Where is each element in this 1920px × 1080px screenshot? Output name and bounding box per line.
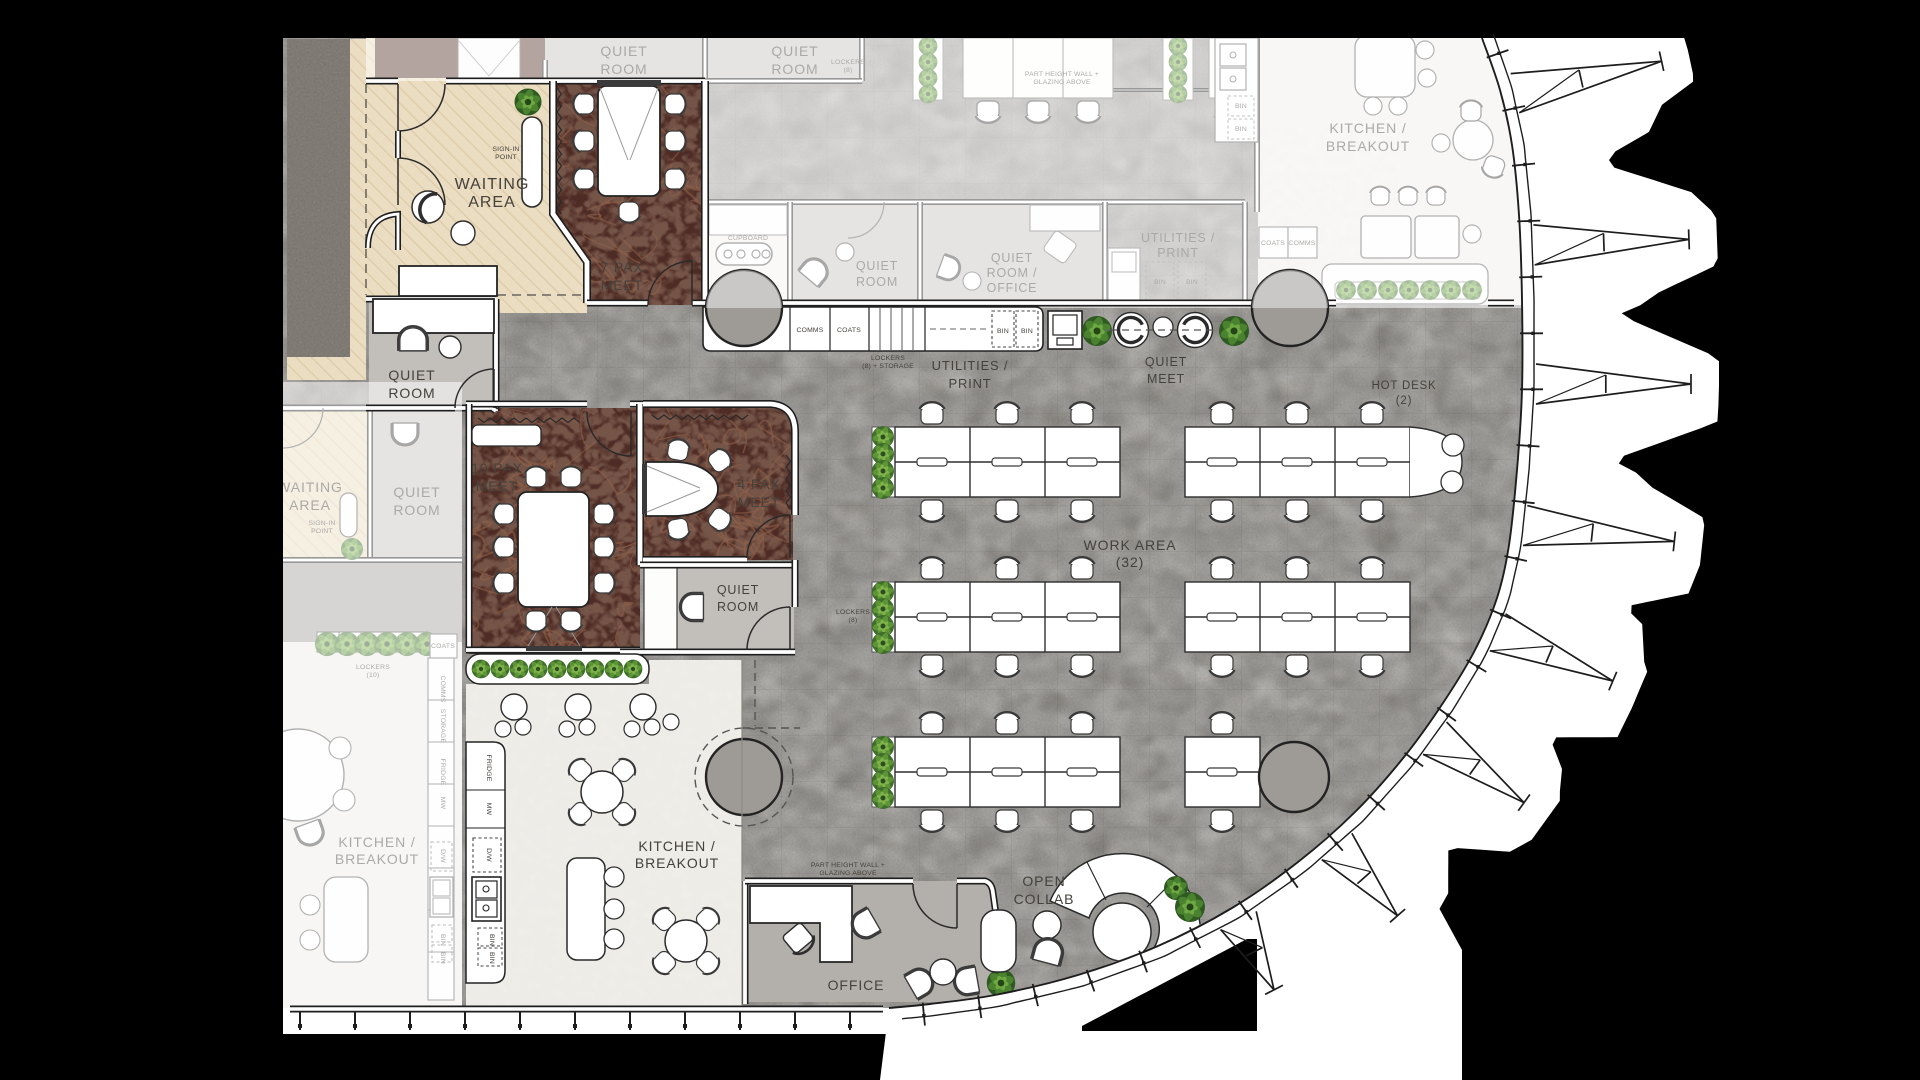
svg-text:10 PAX: 10 PAX bbox=[471, 460, 523, 476]
svg-text:QUIET: QUIET bbox=[717, 583, 759, 597]
svg-text:FRIDGE: FRIDGE bbox=[485, 755, 492, 782]
svg-text:BREAKOUT: BREAKOUT bbox=[635, 855, 719, 871]
svg-text:OPEN: OPEN bbox=[1022, 873, 1065, 889]
svg-text:UTILITIES /: UTILITIES / bbox=[932, 358, 1009, 373]
svg-text:7 PAX: 7 PAX bbox=[600, 259, 643, 275]
svg-text:LOCKERS: LOCKERS bbox=[871, 355, 905, 362]
svg-text:BIN: BIN bbox=[488, 952, 495, 964]
svg-text:(2): (2) bbox=[1396, 395, 1412, 407]
svg-text:QUIET: QUIET bbox=[1145, 355, 1187, 369]
svg-text:ROOM: ROOM bbox=[388, 385, 435, 401]
svg-text:HOT DESK: HOT DESK bbox=[1372, 380, 1437, 392]
svg-text:(32): (32) bbox=[1116, 554, 1145, 570]
svg-text:BIN: BIN bbox=[488, 934, 495, 946]
svg-text:4 PAX: 4 PAX bbox=[737, 476, 780, 492]
svg-text:MW: MW bbox=[485, 803, 492, 816]
svg-text:WORK AREA: WORK AREA bbox=[1084, 537, 1177, 553]
svg-text:WAITING: WAITING bbox=[455, 176, 530, 193]
svg-text:D/W: D/W bbox=[485, 848, 492, 862]
svg-text:MEET: MEET bbox=[738, 494, 781, 510]
svg-text:OFFICE: OFFICE bbox=[828, 977, 885, 993]
svg-text:BIN: BIN bbox=[997, 328, 1009, 335]
svg-text:MEET: MEET bbox=[601, 277, 644, 293]
svg-text:SIGN-IN: SIGN-IN bbox=[492, 146, 519, 153]
svg-text:(8) + STORAGE: (8) + STORAGE bbox=[862, 363, 914, 370]
svg-text:KITCHEN /: KITCHEN / bbox=[638, 838, 715, 854]
svg-text:ROOM: ROOM bbox=[717, 600, 759, 614]
svg-text:COMMS: COMMS bbox=[796, 327, 823, 334]
svg-text:GLAZING ABOVE: GLAZING ABOVE bbox=[819, 870, 877, 877]
svg-text:QUIET: QUIET bbox=[388, 367, 435, 383]
svg-text:PRINT: PRINT bbox=[949, 376, 992, 391]
svg-text:COATS: COATS bbox=[837, 327, 861, 334]
svg-text:BIN: BIN bbox=[1021, 328, 1033, 335]
svg-text:LOCKERS: LOCKERS bbox=[836, 609, 870, 616]
svg-text:(8): (8) bbox=[849, 617, 858, 624]
svg-text:PART HEIGHT WALL +: PART HEIGHT WALL + bbox=[811, 862, 885, 869]
svg-text:MEET: MEET bbox=[1147, 372, 1185, 386]
svg-text:POINT: POINT bbox=[495, 154, 517, 161]
svg-text:MEET: MEET bbox=[476, 478, 519, 494]
svg-text:AREA: AREA bbox=[468, 194, 516, 211]
svg-text:COLLAB: COLLAB bbox=[1014, 891, 1075, 907]
